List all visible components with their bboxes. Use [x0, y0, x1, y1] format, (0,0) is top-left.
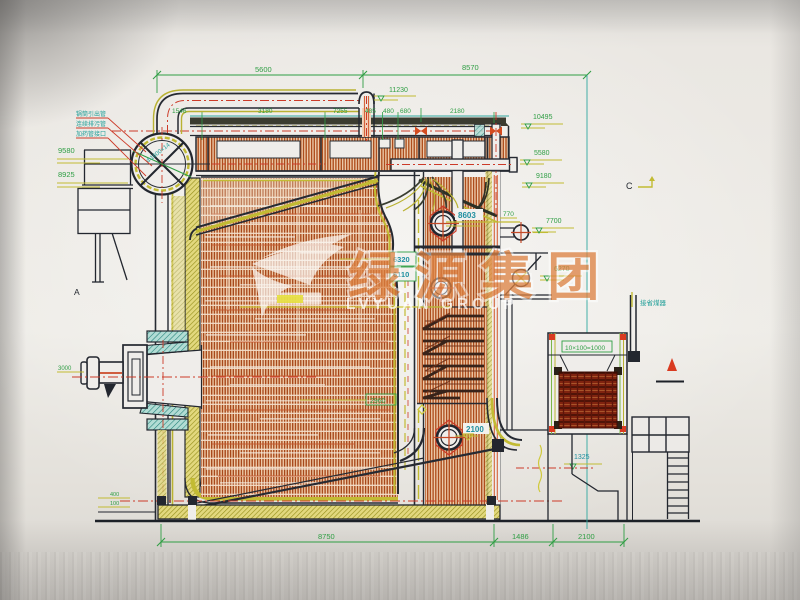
- svg-text:680: 680: [400, 108, 411, 115]
- svg-text:加药管接口: 加药管接口: [76, 130, 106, 138]
- svg-text:8603: 8603: [458, 211, 476, 220]
- svg-text:480: 480: [383, 108, 394, 115]
- svg-text:2100: 2100: [578, 532, 595, 541]
- svg-text:400: 400: [110, 492, 119, 498]
- svg-text:2180: 2180: [450, 108, 465, 115]
- svg-text:2960: 2960: [370, 398, 386, 405]
- svg-text:3000: 3000: [58, 366, 72, 372]
- svg-text:7255: 7255: [333, 108, 348, 115]
- svg-text:LVYUAN GROUP: LVYUAN GROUP: [346, 296, 518, 313]
- svg-text:8925: 8925: [58, 170, 75, 179]
- svg-text:C: C: [626, 181, 633, 191]
- svg-text:100: 100: [110, 501, 119, 507]
- svg-text:锅筒引出管: 锅筒引出管: [76, 110, 106, 118]
- svg-text:3180: 3180: [258, 108, 273, 115]
- svg-text:9180: 9180: [536, 173, 552, 180]
- svg-text:8750: 8750: [318, 532, 335, 541]
- svg-text:1486: 1486: [512, 532, 529, 541]
- svg-text:5580: 5580: [534, 150, 550, 157]
- svg-text:10×100=1000: 10×100=1000: [565, 345, 606, 352]
- svg-text:770: 770: [503, 211, 514, 218]
- svg-text:8570: 8570: [462, 63, 479, 72]
- svg-text:9580: 9580: [58, 146, 75, 155]
- svg-text:连续排污管: 连续排污管: [76, 120, 106, 128]
- svg-text:2100: 2100: [466, 425, 484, 434]
- svg-text:5600: 5600: [255, 65, 272, 74]
- svg-text:接省煤器: 接省煤器: [640, 298, 667, 307]
- svg-text:7700: 7700: [546, 218, 562, 225]
- svg-text:1546: 1546: [172, 108, 187, 115]
- svg-text:485: 485: [365, 108, 376, 115]
- svg-text:11230: 11230: [389, 87, 408, 94]
- svg-text:1325: 1325: [574, 454, 590, 461]
- svg-text:10495: 10495: [533, 114, 553, 121]
- svg-text:A: A: [74, 287, 80, 297]
